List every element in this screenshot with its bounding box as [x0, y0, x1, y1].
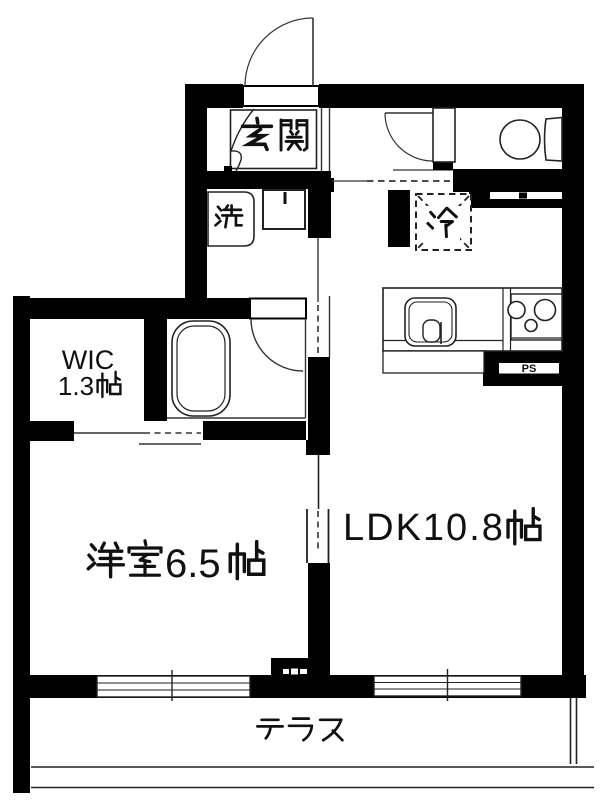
svg-text:6.5: 6.5: [165, 542, 221, 586]
svg-text:1.3: 1.3: [58, 371, 94, 401]
svg-text:PS: PS: [522, 363, 537, 375]
svg-text:LDK10.8: LDK10.8: [343, 507, 505, 549]
